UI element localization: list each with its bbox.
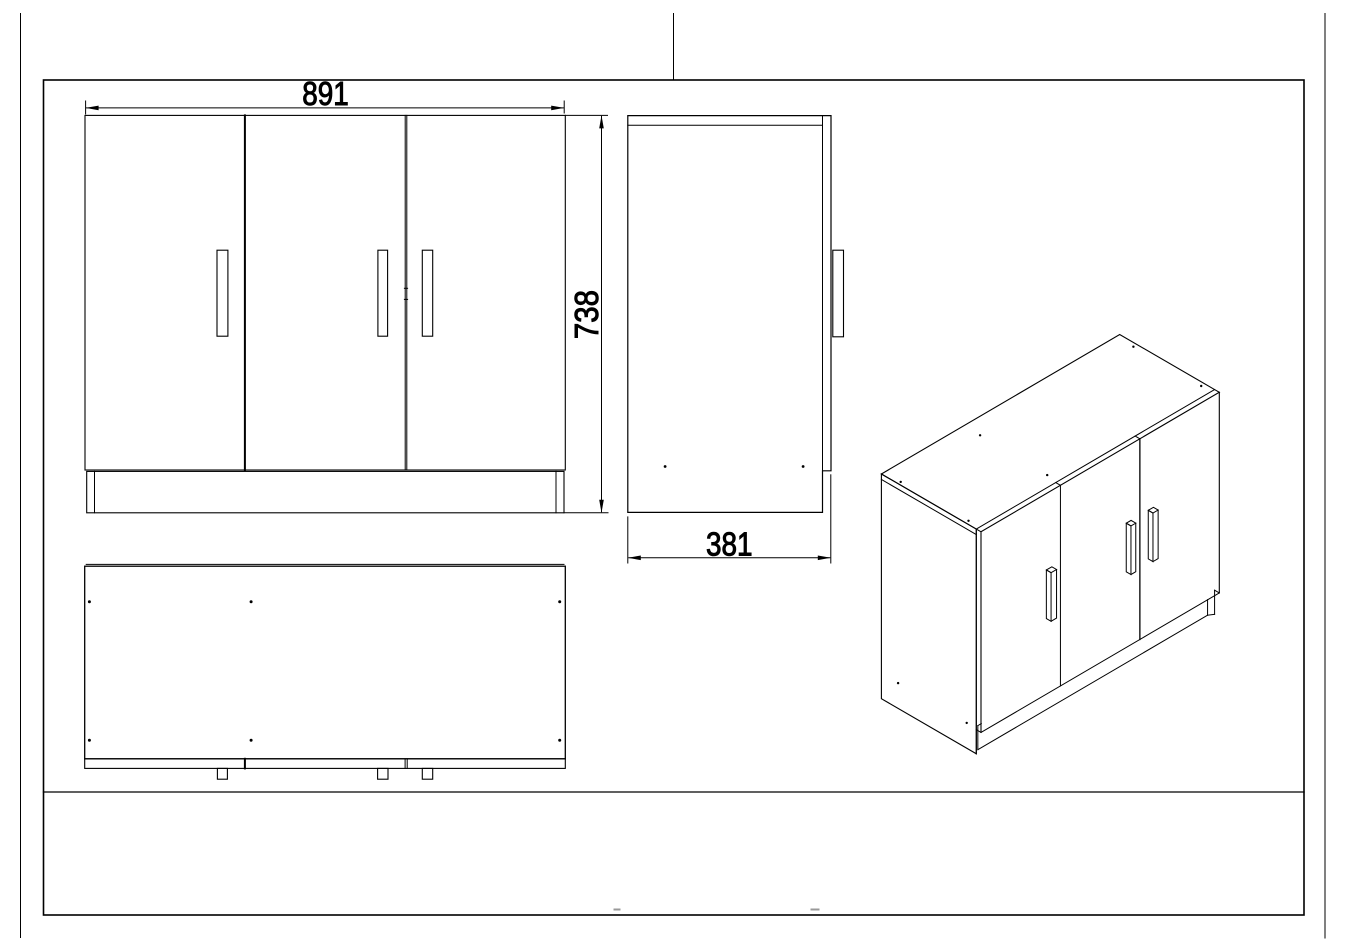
svg-text:381: 381 <box>706 525 753 562</box>
svg-text:891: 891 <box>302 75 349 112</box>
svg-text:738: 738 <box>568 290 605 339</box>
